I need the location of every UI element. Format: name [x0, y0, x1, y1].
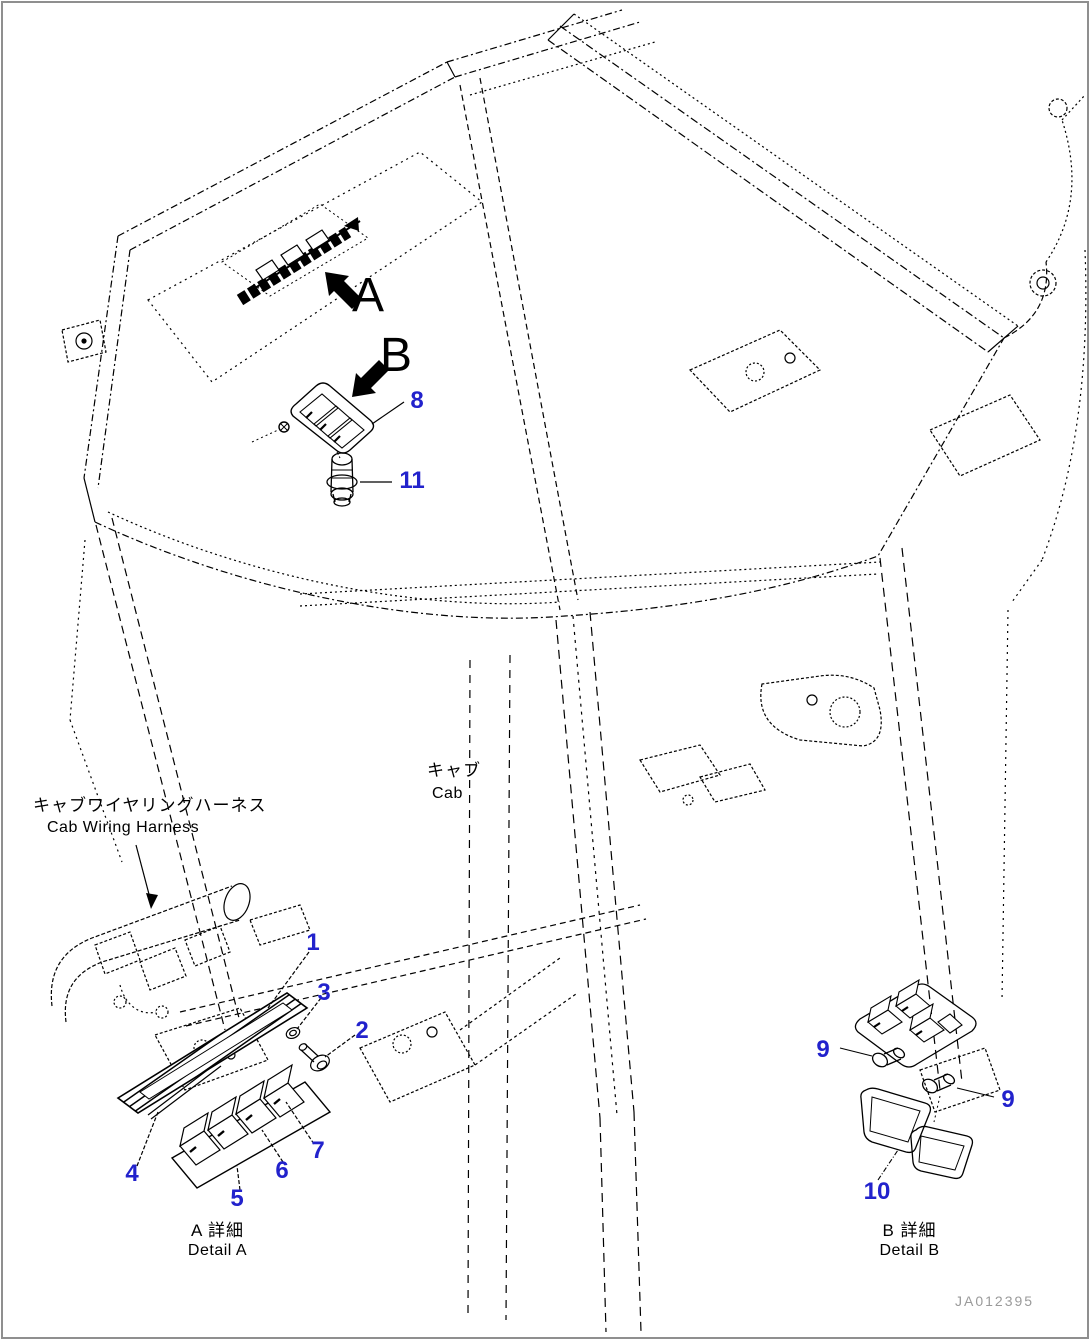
- harness-label-jp: キャブワイヤリングハーネス: [33, 795, 267, 816]
- detail-b-caption-jp: B 詳細: [852, 1220, 967, 1241]
- callout-10[interactable]: 10: [864, 1178, 891, 1206]
- callout-5[interactable]: 5: [230, 1185, 243, 1213]
- callout-9b[interactable]: 9: [1001, 1086, 1014, 1114]
- callout-2[interactable]: 2: [355, 1017, 368, 1045]
- detail-a-caption-jp: A 詳細: [160, 1220, 275, 1241]
- callout-7[interactable]: 7: [311, 1137, 324, 1165]
- harness-leader: [136, 845, 158, 909]
- cab-label-jp: キャブ: [427, 760, 481, 781]
- detail-b-caption-en: Detail B: [852, 1241, 967, 1261]
- parts-diagram-page: { "page": { "background": "#ffffff", "li…: [0, 0, 1090, 1340]
- view-label-a: A: [352, 266, 384, 326]
- harness-label-en: Cab Wiring Harness: [47, 818, 199, 838]
- detail-a-caption: A 詳細 Detail A: [160, 1220, 275, 1261]
- detail-a-caption-en: Detail A: [160, 1241, 275, 1261]
- drawing-code: JA012395: [955, 1293, 1034, 1311]
- callout-11[interactable]: 11: [399, 467, 424, 495]
- view-label-b: B: [380, 326, 412, 386]
- callout-9a[interactable]: 9: [816, 1036, 829, 1064]
- callout-3[interactable]: 3: [317, 979, 330, 1007]
- leader-lines-main: [360, 402, 404, 482]
- callout-1[interactable]: 1: [306, 929, 319, 957]
- part-11-bolt: [327, 453, 357, 506]
- detail-a-drawing: [51, 880, 355, 1190]
- cab-frame-line-art: [0, 0, 1090, 1340]
- detail-b-drawing: [840, 980, 994, 1180]
- callout-4[interactable]: 4: [125, 1160, 138, 1188]
- cab-label-en: Cab: [432, 784, 463, 804]
- callout-6[interactable]: 6: [275, 1157, 288, 1185]
- callout-8[interactable]: 8: [410, 387, 423, 415]
- detail-b-caption: B 詳細 Detail B: [852, 1220, 967, 1261]
